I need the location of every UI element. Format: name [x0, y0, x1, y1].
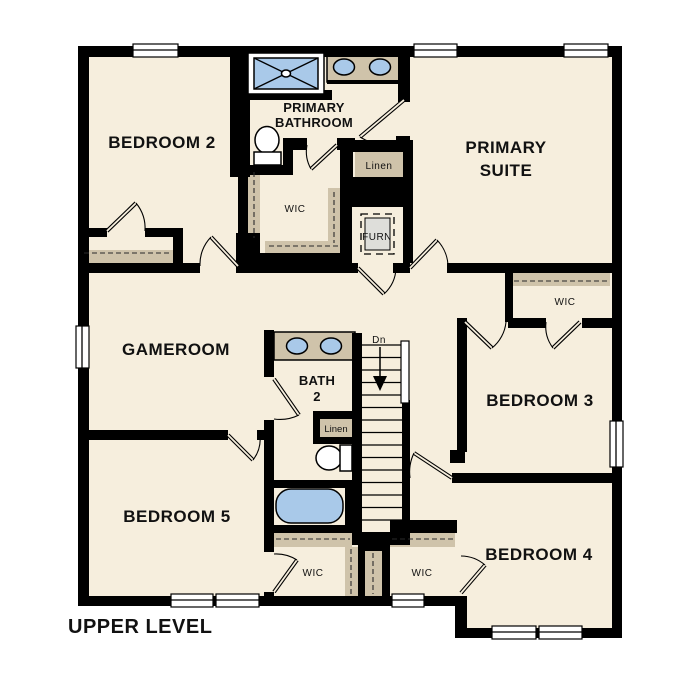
window: [76, 326, 89, 368]
bedroom5-wic-shelf-right: [345, 547, 358, 596]
label-linen-primary: Linen: [366, 161, 393, 172]
bathtub-icon: [276, 489, 343, 523]
label-linen-bath2: Linen: [324, 424, 347, 435]
bedroom3-wic-shelf: [512, 272, 610, 286]
room-label-bedroom3: BEDROOM 3: [486, 391, 593, 410]
room-label-primary-suite-2: SUITE: [480, 161, 533, 180]
window: [539, 626, 582, 639]
window: [392, 594, 424, 607]
label-primary-wic: WIC: [285, 204, 306, 215]
window: [216, 594, 259, 607]
stair-railing: [401, 341, 409, 403]
page-title: UPPER LEVEL: [68, 616, 212, 638]
window: [564, 44, 608, 57]
window: [133, 44, 178, 57]
label-bedroom4-wic: WIC: [412, 568, 433, 579]
floor-plan-page: BEDROOM 2 PRIMARY BATHROOM PRIMARY SUITE…: [0, 0, 687, 687]
room-label-primary-bathroom-1: PRIMARY: [283, 100, 345, 115]
room-label-primary-suite-1: PRIMARY: [465, 138, 546, 157]
room-label-bath2-2: 2: [313, 389, 321, 404]
room-label-bedroom5: BEDROOM 5: [123, 507, 230, 526]
toilet-icon: [316, 445, 352, 471]
window: [610, 421, 623, 467]
room-label-bedroom4: BEDROOM 4: [485, 545, 593, 564]
shower-icon: [248, 53, 324, 94]
window: [171, 594, 213, 607]
window: [492, 626, 536, 639]
room-label-bedroom2: BEDROOM 2: [108, 133, 215, 152]
floor-plan-drawing: BEDROOM 2 PRIMARY BATHROOM PRIMARY SUITE…: [0, 0, 687, 687]
toilet-icon: [254, 127, 281, 166]
window: [414, 44, 457, 57]
label-stairs-down: Dn: [372, 335, 386, 346]
room-label-gameroom: GAMEROOM: [122, 340, 230, 359]
room-label-primary-bathroom-2: BATHROOM: [275, 115, 353, 130]
label-furnace: FURN: [362, 232, 392, 243]
label-bedroom5-wic: WIC: [303, 568, 324, 579]
label-bedroom3-wic: WIC: [555, 297, 576, 308]
room-label-bath2-1: BATH: [299, 373, 335, 388]
